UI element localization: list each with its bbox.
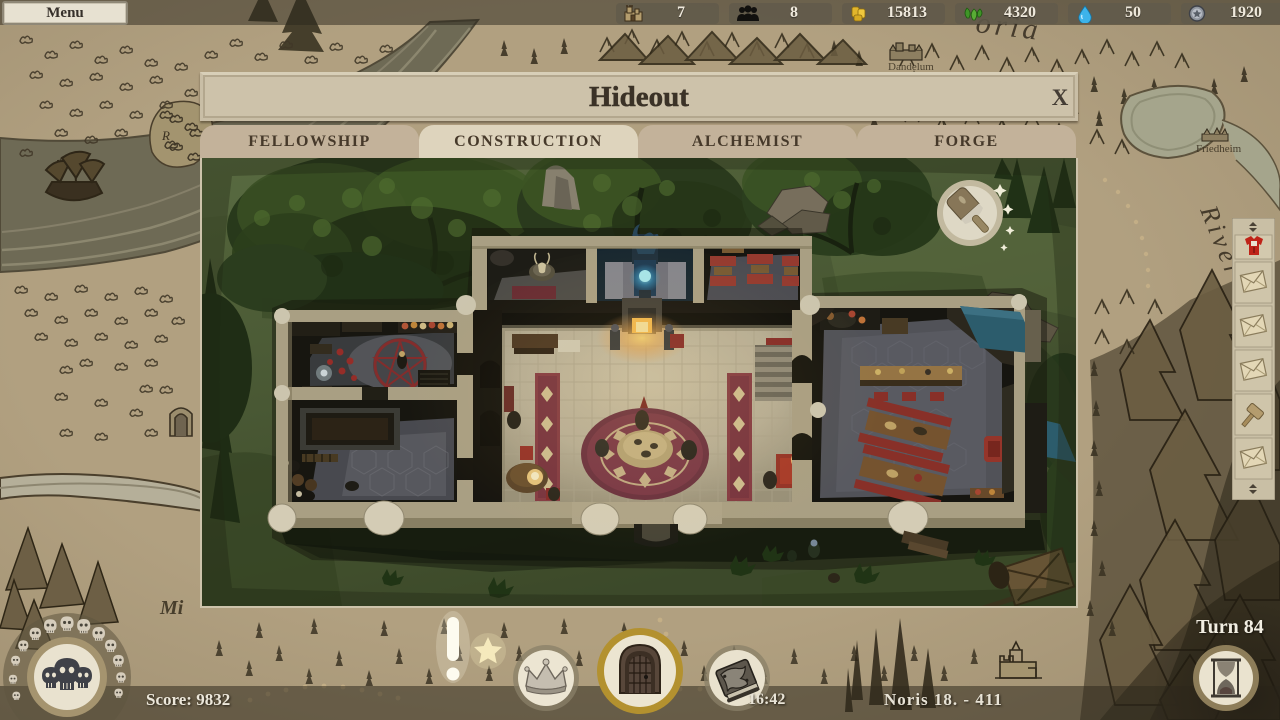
svg-text:R: R xyxy=(161,128,170,143)
svg-text:Friedheim: Friedheim xyxy=(1196,143,1242,155)
